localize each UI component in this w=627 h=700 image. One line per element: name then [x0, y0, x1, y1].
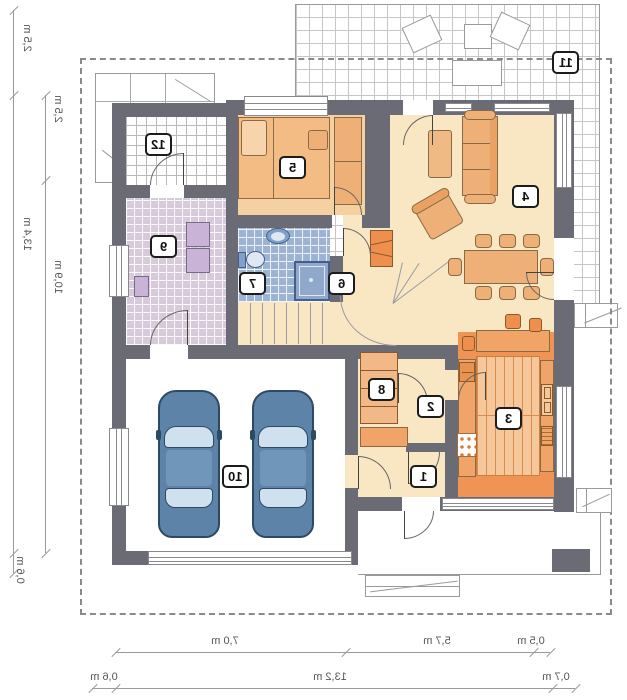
terrace-table-icon — [464, 24, 492, 49]
dim-label: 0,7 m — [526, 671, 586, 683]
opening-porch-door — [150, 185, 184, 198]
car-roof — [166, 450, 212, 486]
wall-bedroom-south-e — [362, 215, 390, 228]
kitchen-window-right — [556, 386, 572, 478]
bedroom-window — [244, 96, 328, 116]
room-badge-5: 5 — [279, 156, 306, 179]
stair-tread — [298, 303, 299, 344]
dim-line-left-inner — [45, 95, 46, 553]
dining-chair-icon — [523, 234, 540, 248]
room-badge-10: 10 — [222, 465, 249, 488]
stair-bottom-steps — [370, 230, 393, 267]
wall-room1-room2 — [406, 443, 445, 452]
washbasin-icon — [266, 228, 290, 244]
car-mirror — [311, 430, 316, 440]
stair-tread — [250, 303, 251, 344]
boiler-icon — [134, 276, 149, 297]
dim-label: 13,4 m — [21, 206, 33, 262]
terrace-door-right-leaf — [526, 272, 554, 273]
room-badge-8: 8 — [368, 378, 395, 401]
room-badge-3: 3 — [495, 407, 522, 430]
kitchen-door-leaf — [485, 372, 486, 400]
porch-door-leaf — [183, 153, 184, 185]
bar-stool-icon — [462, 336, 475, 351]
car-mirror — [156, 430, 161, 440]
stair-tread — [274, 303, 275, 344]
toilet-icon — [238, 250, 268, 270]
entry-porch-edge-right — [600, 511, 601, 575]
terrace-door-top-leaf — [432, 115, 433, 145]
car-mirror — [217, 430, 222, 440]
stair-tread — [286, 303, 287, 344]
bar-stool-icon — [505, 314, 521, 329]
room-badge-6: 6 — [328, 272, 355, 295]
living-window-right — [556, 113, 572, 188]
stair-tread — [310, 303, 311, 344]
kitchen-counter-right — [540, 360, 554, 472]
room-badge-7: 7 — [239, 272, 266, 295]
dining-chair-icon — [499, 234, 516, 248]
floor-plan-canvas: 1 2 3 4 5 6 7 8 9 10 11 12 2,5 m 13,4 m … — [0, 0, 627, 700]
dim-line-bottom-upper — [115, 652, 550, 653]
bar-stool-icon — [529, 318, 542, 332]
room-badge-2: 2 — [417, 395, 444, 418]
washing-machine-icon — [186, 222, 210, 247]
utility-window — [109, 245, 129, 297]
dim-label: 10,9 m — [52, 249, 64, 305]
bedroom-door-leaf — [334, 187, 335, 215]
entry-steps-right — [576, 488, 612, 513]
car-rear-window — [165, 488, 213, 508]
opening-utility-door — [150, 345, 188, 359]
bathroom-door-leaf — [343, 228, 344, 256]
dishwasher-icon — [541, 426, 553, 446]
dryer-icon — [186, 248, 210, 273]
dim-label: 5,7 m — [407, 635, 467, 647]
dim-label: 0,6 m — [74, 671, 134, 683]
opening-room2-kitchen — [445, 370, 458, 400]
garage-room1-door-leaf — [358, 456, 359, 489]
wall-bedroom-south-w — [238, 215, 332, 228]
wall-top-west — [112, 103, 226, 117]
dining-chair-icon — [475, 286, 492, 300]
room-badge-11: 11 — [552, 51, 579, 74]
wall-west-section — [226, 103, 238, 345]
stair-tread — [322, 303, 323, 344]
opening-front-door — [402, 497, 440, 511]
opening-garage-room1 — [345, 455, 358, 488]
car-icon — [252, 390, 314, 538]
opening-terrace-door-top — [403, 100, 433, 115]
wall-bedroom-living — [365, 108, 390, 215]
dim-line-bottom-lower — [92, 688, 575, 689]
car-windshield — [164, 426, 214, 448]
dim-label: 2,5 m — [52, 81, 64, 137]
room1-room2-door-leaf — [408, 452, 409, 484]
room-badge-1: 1 — [410, 465, 437, 488]
shower-icon — [294, 261, 330, 301]
front-door-leaf — [404, 511, 405, 539]
room-badge-12: 12 — [145, 133, 172, 156]
dim-label: 13,2 m — [300, 671, 360, 683]
room-badge-9: 9 — [150, 235, 177, 258]
living-glazing-2 — [494, 103, 550, 112]
car-mirror — [250, 430, 255, 440]
sofa-armrest — [464, 194, 496, 204]
pantry-door-leaf — [398, 373, 399, 403]
garage-window — [109, 428, 129, 506]
pillow-icon — [241, 120, 267, 156]
nightstand-icon — [308, 130, 328, 150]
sofa-armrest — [464, 110, 496, 120]
dim-label: 0,5 m — [501, 635, 561, 647]
garage-door — [148, 551, 352, 565]
car-roof — [260, 450, 306, 486]
car-windshield — [258, 426, 308, 448]
car-icon — [158, 390, 220, 538]
dim-label: 7,0 m — [195, 635, 255, 647]
dim-label: 0,6 m — [14, 542, 26, 598]
cooktop-icon — [457, 433, 477, 457]
car-rear-window — [259, 488, 307, 508]
room-badge-4: 4 — [512, 185, 539, 208]
dim-label: 2,5 m — [21, 10, 33, 66]
kitchen-sink-icon — [541, 384, 553, 416]
kitchen-bar-counter — [476, 330, 550, 352]
sofa-icon — [462, 116, 498, 196]
dining-chair-icon — [448, 258, 462, 276]
opening-terrace-door-right — [554, 238, 574, 300]
hallway-window-bottom — [442, 498, 554, 510]
entry-steps — [365, 575, 460, 597]
hall-cabinet-icon — [360, 427, 408, 447]
utility-door-leaf — [187, 310, 188, 345]
dining-chair-icon — [499, 286, 516, 300]
dining-chair-icon — [475, 234, 492, 248]
stair-tread — [262, 303, 263, 344]
entry-porch-pillar — [552, 549, 590, 572]
